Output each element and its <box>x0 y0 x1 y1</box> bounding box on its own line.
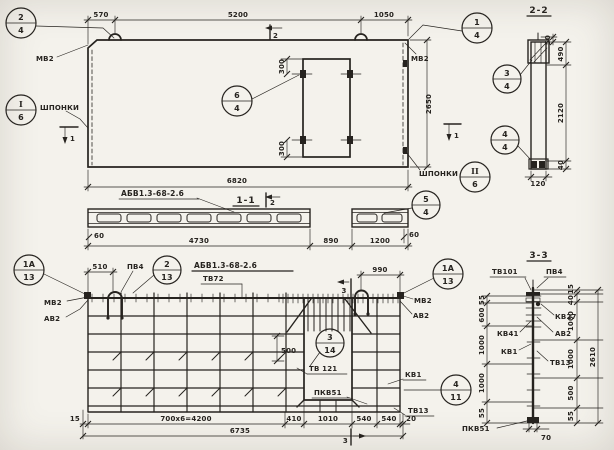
label-kv27: КВ27 <box>555 313 577 321</box>
dim-500-label: 500 <box>281 347 296 355</box>
callout-4-11: 411 <box>441 375 471 405</box>
dim-570: 570 <box>93 11 108 19</box>
section-3-3-dims: 55 600 1000 1000 55 15 40 1000 1000 500 … <box>478 284 601 442</box>
main-elevation: 570 5200 1050 2650 6820 300 300 2 <box>6 8 492 212</box>
svg-text:4: 4 <box>504 82 510 91</box>
label-kv41: КВ41 <box>497 330 519 338</box>
dim-70: 70 <box>541 434 551 442</box>
dim-1050: 1050 <box>374 11 394 19</box>
label-av2: АВ2 <box>555 330 571 338</box>
svg-text:4: 4 <box>18 26 24 35</box>
mark-1-label: 1 <box>70 135 75 143</box>
callout-1a-13-left: 1А13 <box>14 255 44 285</box>
section-1-1-dims: 60 4730 890 1200 60 <box>84 229 419 250</box>
svg-text:13: 13 <box>23 273 35 282</box>
embed-plate <box>300 136 306 144</box>
label-kv1: КВ1 <box>405 371 422 379</box>
drawing-sheet: 570 5200 1050 2650 6820 300 300 2 <box>0 0 614 450</box>
rebar-plan: АБВ1.3-68-2.6 ТВ72 <box>14 255 471 445</box>
dim-1000-left-b: 1000 <box>478 373 486 393</box>
corner-embed <box>84 292 91 299</box>
callout-1a-13-right: 1А13 <box>433 259 463 289</box>
mesh-grid <box>84 291 404 412</box>
dim-490: 490 <box>557 46 565 61</box>
svg-text:11: 11 <box>450 393 462 402</box>
callout-5-4: 54 <box>412 191 440 219</box>
dim-15: 15 <box>567 284 575 294</box>
lifting-loop-icon <box>355 34 367 40</box>
key-block <box>403 60 407 67</box>
callout-4-4: 44 <box>491 126 519 154</box>
plan-subtitle: ТВ72 <box>203 275 224 283</box>
label-shponki-left: ШПОНКИ <box>40 104 79 112</box>
callout-3-14: 314 <box>316 329 344 357</box>
opening-band-bars <box>308 298 350 331</box>
section-mark-3-bottom: 3 <box>343 429 366 445</box>
section-1-1-title: 1-1 <box>236 196 255 206</box>
section-2-2: 2-2 50 490 2120 40 120 34 44 <box>491 6 571 188</box>
section-2-2-title: 2-2 <box>529 6 548 16</box>
lifting-loop-plan <box>108 292 122 318</box>
label-tv101: ТВ101 <box>492 268 518 276</box>
embed-plate <box>300 70 306 78</box>
label-mv2-left: МВ2 <box>36 55 54 63</box>
section-mark-3-top: 3 <box>337 279 351 297</box>
svg-text:6: 6 <box>472 180 478 189</box>
dim-55-bot-right: 55 <box>567 411 575 421</box>
svg-text:4: 4 <box>423 208 429 217</box>
dim-15: 15 <box>70 415 80 423</box>
dim-500-right: 500 <box>567 385 575 400</box>
svg-text:4: 4 <box>502 130 508 139</box>
plan-title: АБВ1.3-68-2.6 <box>194 261 257 270</box>
callout-3-4: 34 <box>493 65 521 93</box>
section-2-2-body <box>531 42 546 169</box>
section-1-1: АБВ1.3-68-2.6 1-1 2 60 4730 890 <box>84 189 440 250</box>
dim-990: 990 <box>372 266 387 274</box>
dim-40: 40 <box>557 160 565 170</box>
svg-text:13: 13 <box>442 277 454 286</box>
section-3-3-title: 3-3 <box>529 251 548 261</box>
dim-60-right: 60 <box>409 231 419 239</box>
plan-leaders <box>44 271 441 415</box>
svg-text:1А: 1А <box>442 264 455 273</box>
dim-1010: 1010 <box>318 415 338 423</box>
callout-2-4: 24 <box>6 8 36 38</box>
dim-2120: 2120 <box>557 103 565 123</box>
dim-20: 20 <box>406 415 416 423</box>
hollow-cores-right <box>357 214 402 222</box>
svg-text:2: 2 <box>164 260 170 269</box>
dim-6735: 6735 <box>230 427 250 435</box>
dim-2610: 2610 <box>589 347 597 367</box>
dim-410: 410 <box>286 415 301 423</box>
hollow-cores-left <box>97 214 301 222</box>
callout-1-4: 14 <box>462 13 492 43</box>
mark-2-label: 2 <box>273 32 278 40</box>
svg-text:II: II <box>471 166 479 176</box>
dim-1200: 1200 <box>370 237 390 245</box>
dim-total: 6820 <box>84 170 412 191</box>
svg-text:I: I <box>19 99 23 109</box>
svg-text:3: 3 <box>327 333 333 342</box>
svg-text:1: 1 <box>474 18 480 27</box>
dim-60-left: 60 <box>94 232 104 240</box>
dim-500: 500 <box>272 333 296 364</box>
dim-300-bot: 300 <box>278 141 286 156</box>
corner-embed <box>397 292 404 299</box>
label-mv2-right: МВ2 <box>414 297 432 305</box>
dim-4730: 4730 <box>189 237 209 245</box>
dim-55-bot-left: 55 <box>478 408 486 418</box>
callout-I-6: I6 <box>6 95 36 125</box>
svg-text:4: 4 <box>502 143 508 152</box>
label-tv13: ТВ13 <box>550 359 571 367</box>
label-pkv51: ПКВ51 <box>314 389 342 397</box>
dim-540b: 540 <box>381 415 396 423</box>
slab-piece-right <box>352 209 408 227</box>
label-pkv51: ПКВ51 <box>462 425 490 433</box>
label-pv4: ПВ4 <box>546 268 563 276</box>
label-pv4: ПВ4 <box>127 263 144 271</box>
callout-2-13: 213 <box>153 256 181 284</box>
dim-6820: 6820 <box>227 177 247 185</box>
panel-outline <box>88 40 408 167</box>
series-tag: АБВ1.3-68-2.6 <box>121 189 184 198</box>
dim-opening: 300 300 <box>278 56 302 160</box>
leaders <box>36 25 462 212</box>
svg-text:4: 4 <box>453 380 459 389</box>
mark-3-label: 3 <box>341 287 346 295</box>
embed-plate <box>347 136 353 144</box>
svg-text:3: 3 <box>504 69 510 78</box>
svg-text:5: 5 <box>423 195 429 204</box>
dim-1000-left-a: 1000 <box>478 335 486 355</box>
svg-text:1А: 1А <box>23 260 36 269</box>
svg-text:2: 2 <box>18 13 24 22</box>
section-mark-1-right: 1 <box>444 124 461 141</box>
section-mark-1-left: 1 <box>60 127 78 144</box>
bar-hooks <box>113 352 286 396</box>
label-mv2-right: МВ2 <box>411 55 429 63</box>
svg-text:4: 4 <box>474 31 480 40</box>
panel-drawing: 570 5200 1050 2650 6820 300 300 2 <box>0 0 614 450</box>
section-3-3: 3-3 55 600 1000 1000 55 15 40 1000 1000 <box>462 251 603 442</box>
dim-5200: 5200 <box>228 11 248 19</box>
dim-890: 890 <box>323 237 338 245</box>
label-av2-left: АВ2 <box>44 315 60 323</box>
dim-540a: 540 <box>356 415 371 423</box>
dim-600: 600 <box>478 307 486 322</box>
dim-50: 50 <box>544 35 552 45</box>
section-mark-2-bottom: 2 <box>265 193 280 207</box>
dim-55-top: 55 <box>478 295 486 305</box>
dim-300-top: 300 <box>278 59 286 74</box>
label-shponki-right: ШПОНКИ <box>419 170 458 178</box>
mark-2-label: 2 <box>270 199 275 207</box>
label-mv2-left: МВ2 <box>44 299 62 307</box>
mark-3-label: 3 <box>343 437 348 445</box>
dim-120: 120 <box>530 180 545 188</box>
mark-1-label: 1 <box>454 132 459 140</box>
svg-text:6: 6 <box>18 113 24 122</box>
svg-text:4: 4 <box>234 104 240 113</box>
callout-II-6: II6 <box>460 162 490 192</box>
svg-text:13: 13 <box>161 273 173 282</box>
svg-text:14: 14 <box>324 346 336 355</box>
dim-510: 510 <box>92 263 107 271</box>
dim-700x6: 700х6=4200 <box>160 415 211 423</box>
section-mark-2-top: 2 <box>265 25 282 40</box>
svg-text:6: 6 <box>234 91 240 100</box>
dim-top-chain: 570 5200 1050 <box>84 11 412 44</box>
label-tv13: ТВ13 <box>408 407 429 415</box>
callout-6-4: 64 <box>222 86 252 116</box>
dim-40: 40 <box>567 295 575 305</box>
embed-plate <box>347 70 353 78</box>
label-kv1: КВ1 <box>501 348 518 356</box>
lifting-loop-plan <box>355 291 368 314</box>
dim-2650: 2650 <box>425 94 433 114</box>
label-av2-right: АВ2 <box>413 312 429 320</box>
label-tv121: ТВ 121 <box>309 365 337 373</box>
